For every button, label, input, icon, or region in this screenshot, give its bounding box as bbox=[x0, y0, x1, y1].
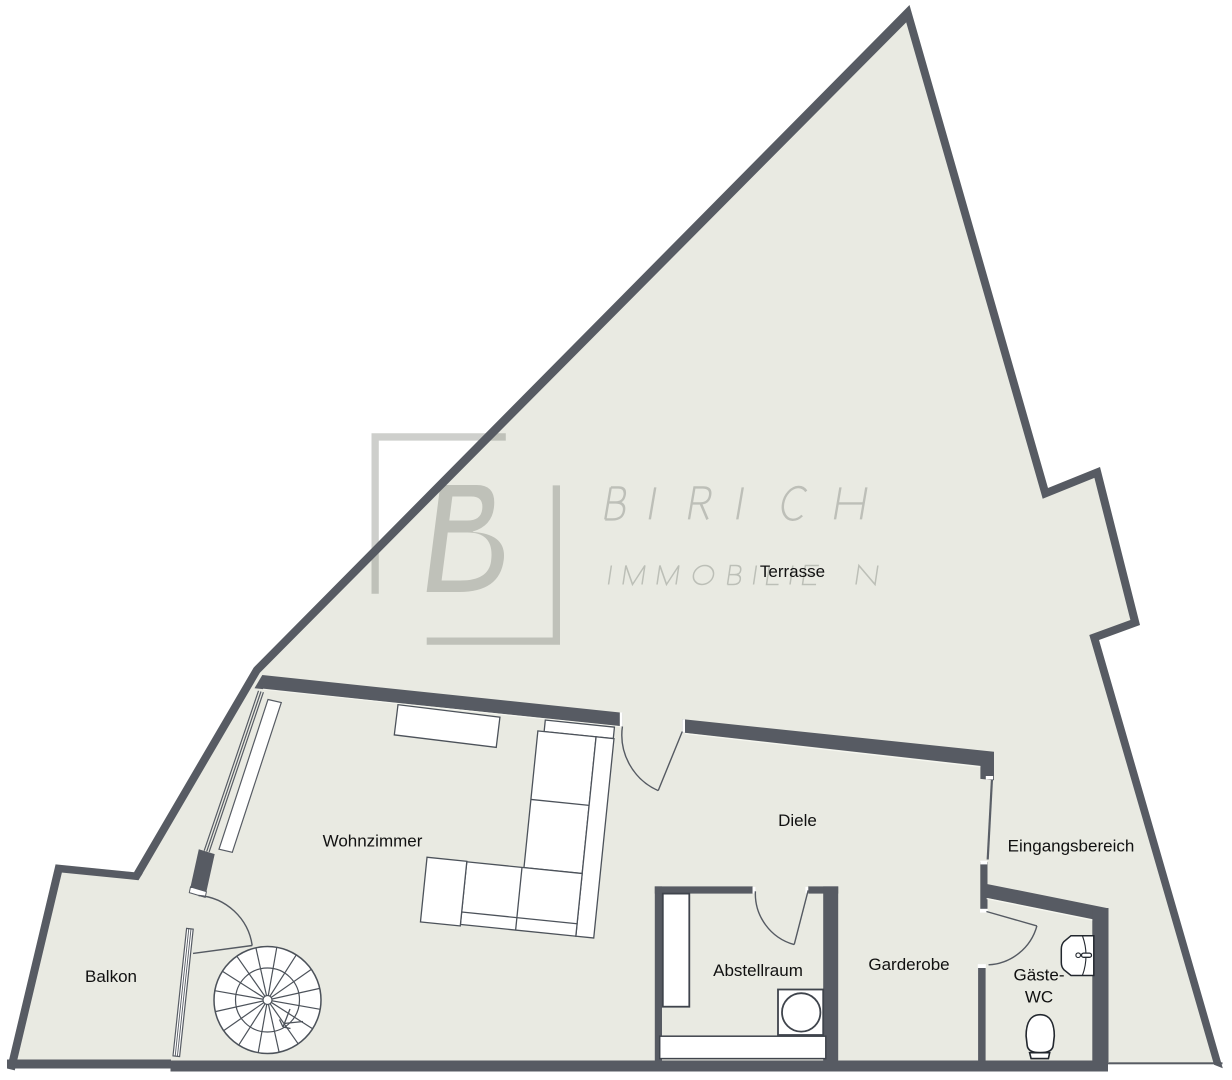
svg-text:Wohnzimmer: Wohnzimmer bbox=[323, 832, 423, 851]
svg-text:Eingangsbereich: Eingangsbereich bbox=[1008, 837, 1135, 856]
svg-text:Diele: Diele bbox=[778, 811, 817, 830]
svg-text:Balkon: Balkon bbox=[85, 967, 137, 986]
svg-text:Terrasse: Terrasse bbox=[760, 562, 825, 581]
svg-text:Gäste-: Gäste- bbox=[1013, 966, 1064, 985]
svg-text:Garderobe: Garderobe bbox=[868, 955, 949, 974]
svg-text:Abstellraum: Abstellraum bbox=[713, 961, 803, 980]
svg-text:WC: WC bbox=[1025, 988, 1053, 1007]
